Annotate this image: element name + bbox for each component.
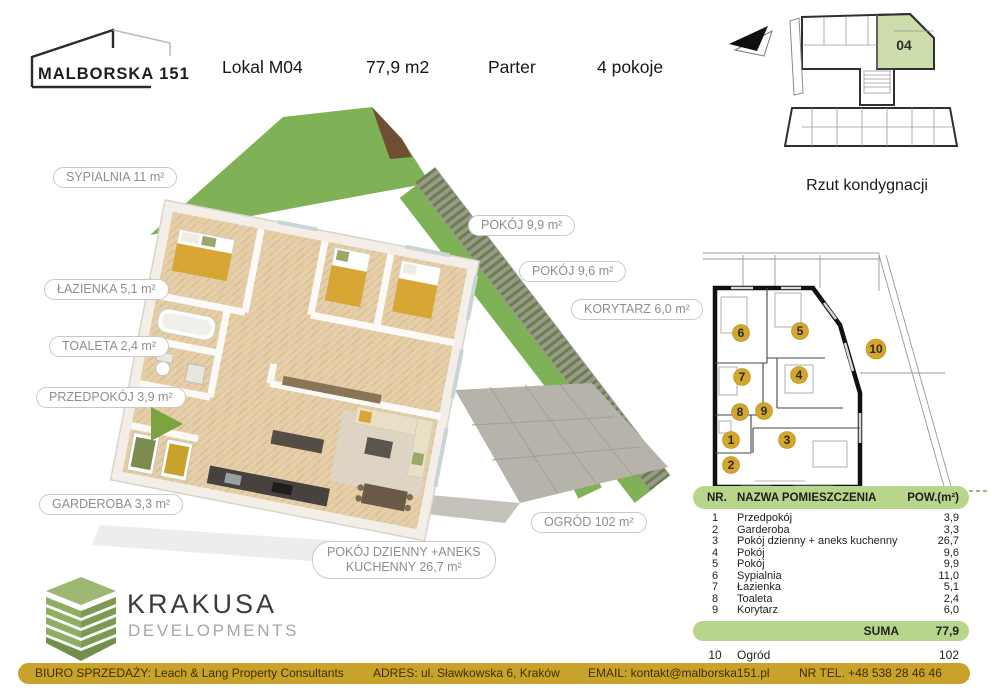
label-pokoj-99: POKÓJ 9,9 m² (468, 215, 575, 236)
label-sypialnia: SYPIALNIA 11 m² (53, 167, 177, 188)
logo-roof-line-light (113, 30, 170, 56)
north-arrow-icon (727, 24, 775, 60)
developer-subtitle: DEVELOPMENTS (128, 621, 299, 641)
area-table-rows: 1Przedpokój3,9 2Garderoba3,3 3Pokój dzie… (693, 513, 969, 617)
label-pokoj-dzienny-line1: POKÓJ DZIENNY +ANEKS (327, 545, 481, 559)
marker-8: 8 (732, 404, 749, 421)
label-lazienka: ŁAZIENKA 5,1 m² (44, 279, 169, 300)
table-row: 9Korytarz6,0 (693, 605, 969, 617)
unit-id: Lokal M04 (222, 57, 303, 78)
label-pokoj-96: POKÓJ 9,6 m² (519, 261, 626, 282)
unit-floor: Parter (488, 57, 536, 78)
area-table-header: NR. NAZWA POMIESZCZENIA POW.(m²) (693, 486, 969, 509)
marker-6: 6 (733, 325, 750, 342)
svg-text:4: 4 (796, 368, 803, 382)
table-row: 4Pokój9,6 (693, 548, 969, 560)
col-name: NAZWA POMIESZCZENIA (737, 492, 907, 504)
area-table: NR. NAZWA POMIESZCZENIA POW.(m²) 1Przedp… (693, 486, 969, 662)
key-plan: 04 (782, 5, 962, 165)
table-row: 1Przedpokój3,9 (693, 513, 969, 525)
svg-text:9: 9 (761, 404, 768, 418)
marker-5: 5 (792, 323, 809, 340)
table-row: 6Sypialnia11,0 (693, 571, 969, 583)
table-row: 8Toaleta2,4 (693, 594, 969, 606)
label-pokoj-dzienny-line2: KUCHENNY 26,7 m² (346, 560, 462, 574)
label-garderoba: GARDEROBA 3,3 m² (39, 494, 183, 515)
footer-bar: BIURO SPRZEDAŻY: Leach & Lang Property C… (18, 663, 970, 684)
table-row-ogrod: 10 Ogród 102 (693, 648, 969, 662)
footer-phone: NR TEL. +48 538 28 46 46 (799, 663, 942, 684)
label-toaleta: TOALETA 2,4 m² (49, 336, 169, 357)
marker-4: 4 (791, 367, 808, 384)
footer-address: ADRES: ul. Sławkowska 6, Kraków (373, 663, 560, 684)
suma-row: SUMA 77,9 (693, 621, 969, 641)
label-korytarz: KORYTARZ 6,0 m² (571, 299, 703, 320)
marker-9: 9 (756, 403, 773, 420)
svg-text:5: 5 (797, 324, 804, 338)
svg-text:1: 1 (728, 433, 735, 447)
plan-2d: 1 2 3 4 5 6 7 (693, 243, 992, 493)
svg-text:2: 2 (728, 458, 735, 472)
col-nr: NR. (693, 492, 737, 504)
developer-name: KRAKUSA (127, 589, 277, 620)
svg-text:10: 10 (869, 342, 883, 356)
svg-text:7: 7 (739, 370, 746, 384)
key-plan-unit-number: 04 (896, 37, 912, 53)
table-row: 3Pokój dzienny + aneks kuchenny26,7 (693, 536, 969, 548)
suma-label: SUMA (864, 624, 899, 638)
suma-value: 77,9 (925, 624, 969, 638)
label-ogrod: OGRÓD 102 m² (531, 512, 647, 533)
marker-10: 10 (866, 339, 886, 359)
malborska-logo: MALBORSKA 151 (20, 15, 210, 105)
label-pokoj-dzienny: POKÓJ DZIENNY +ANEKS KUCHENNY 26,7 m² (312, 541, 496, 579)
footer-email: EMAIL: kontakt@malborska151.pl (588, 663, 770, 684)
key-plan-caption: Rzut kondygnacji (772, 177, 962, 195)
marker-1: 1 (723, 432, 740, 449)
table-row: 7Łazienka5,1 (693, 582, 969, 594)
marker-7: 7 (734, 369, 751, 386)
svg-text:6: 6 (738, 326, 745, 340)
apartment-3d (111, 200, 480, 541)
svg-text:3: 3 (784, 433, 791, 447)
table-row: 5Pokój9,9 (693, 559, 969, 571)
col-area: POW.(m²) (907, 492, 969, 504)
krakusa-logo-icon (42, 575, 120, 665)
marker-2: 2 (723, 457, 740, 474)
label-przedpokoj: PRZEDPOKÓJ 3,9 m² (36, 387, 186, 408)
svg-text:8: 8 (737, 405, 744, 419)
pointer-triangle-icon (151, 407, 183, 441)
marker-3: 3 (779, 432, 796, 449)
footer-sales-office: BIURO SPRZEDAŻY: Leach & Lang Property C… (35, 663, 344, 684)
logo-title: MALBORSKA 151 (38, 65, 190, 83)
unit-rooms: 4 pokoje (597, 57, 663, 78)
unit-area: 77,9 m2 (366, 57, 429, 78)
brochure-page: MALBORSKA 151 Lokal M04 77,9 m2 Parter 4… (0, 0, 992, 698)
